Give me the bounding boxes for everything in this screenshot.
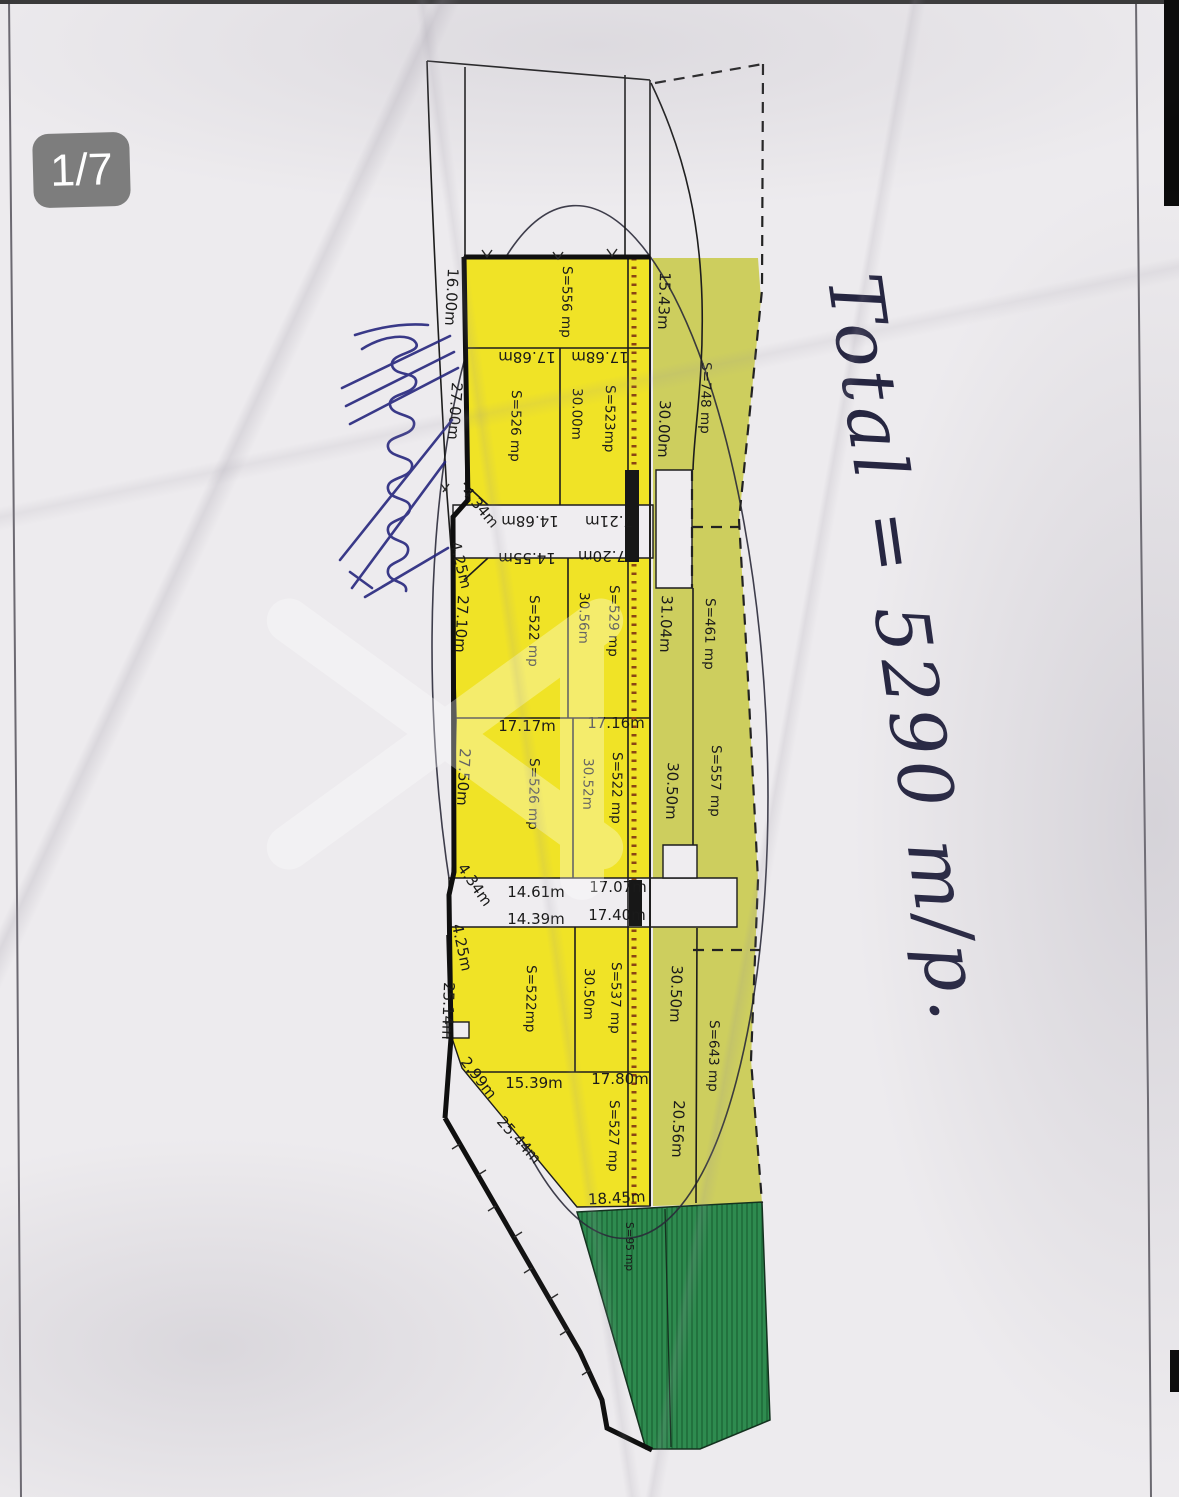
dim-label: 30.00m bbox=[654, 400, 674, 458]
dim-label: 14.61m bbox=[507, 883, 565, 901]
photo-black-notch-right bbox=[1170, 1350, 1179, 1392]
parcel-label: S=526 mp bbox=[507, 390, 524, 462]
dim-label: 27.00m bbox=[444, 382, 466, 441]
dim-label: 17.40m bbox=[588, 906, 646, 924]
photo-top-edge bbox=[0, 0, 1179, 4]
parcel-label: S=522 mp bbox=[525, 595, 542, 667]
parcel-label: S=556 mp bbox=[558, 266, 575, 338]
dim-label: 17.68m bbox=[498, 348, 556, 366]
dim-label: 27.50m bbox=[453, 748, 474, 806]
dim-label: 30.50m bbox=[662, 762, 682, 820]
parcel-label: S=527 mp bbox=[605, 1100, 622, 1172]
dim-label: 30.56m bbox=[575, 592, 592, 644]
dim-label: 17.80m bbox=[591, 1070, 649, 1088]
survey-plan-svg: 16.00m 27.00m 4.34m 4.25m 27.10m 27.50m … bbox=[0, 0, 1179, 1497]
page-counter-badge: 1/7 bbox=[32, 132, 131, 209]
parcel-label: S=643 mp bbox=[705, 1020, 722, 1092]
dim-label: 15.43m bbox=[654, 272, 674, 330]
parcel-label: S=529 mp bbox=[605, 585, 622, 657]
dim-label: 14.39m bbox=[507, 910, 565, 928]
dim-label: 15.39m bbox=[505, 1074, 563, 1092]
parcel-label: S=522 mp bbox=[608, 752, 625, 824]
dim-label: 17.07m bbox=[589, 878, 647, 896]
dim-label: 17.16m bbox=[587, 714, 645, 732]
dim-label: 25.14m bbox=[438, 982, 458, 1040]
dim-label: 27.10m bbox=[451, 595, 472, 653]
parcel-label: S=537 mp bbox=[607, 962, 624, 1034]
dim-label: 30.52m bbox=[579, 758, 596, 810]
parcel-label: S=95 mp bbox=[623, 1222, 635, 1271]
dim-label: 30.00m bbox=[568, 388, 585, 440]
dim-label: 31.04m bbox=[656, 595, 676, 653]
parcel-label: S=557 mp bbox=[707, 745, 724, 817]
dim-label: 7.20m bbox=[578, 547, 626, 565]
parcel-label: S=526 mp bbox=[525, 758, 542, 830]
dim-label: 18.45m bbox=[588, 1188, 646, 1209]
dim-label: 17.68m bbox=[571, 348, 629, 366]
parcel-label: S=461 mp bbox=[701, 598, 718, 670]
dim-label: 17.17m bbox=[498, 717, 556, 735]
dim-label: 14.55m bbox=[498, 549, 556, 567]
parcel-label: S=748 mp bbox=[697, 362, 714, 434]
parcel-label: S=522mp bbox=[522, 965, 539, 1033]
dim-label: 7.21m bbox=[585, 512, 633, 530]
dim-label: 16.00m bbox=[441, 268, 462, 326]
dim-label: 20.56m bbox=[668, 1100, 688, 1158]
scanned-document-photo: 16.00m 27.00m 4.34m 4.25m 27.10m 27.50m … bbox=[0, 0, 1179, 1497]
dim-label: 14.68m bbox=[501, 512, 559, 530]
dim-label: 30.50m bbox=[666, 965, 686, 1023]
parcel-label: S=523mp bbox=[601, 385, 618, 453]
dim-label: 30.50m bbox=[580, 968, 597, 1020]
photo-black-bar-top-right bbox=[1164, 0, 1179, 206]
